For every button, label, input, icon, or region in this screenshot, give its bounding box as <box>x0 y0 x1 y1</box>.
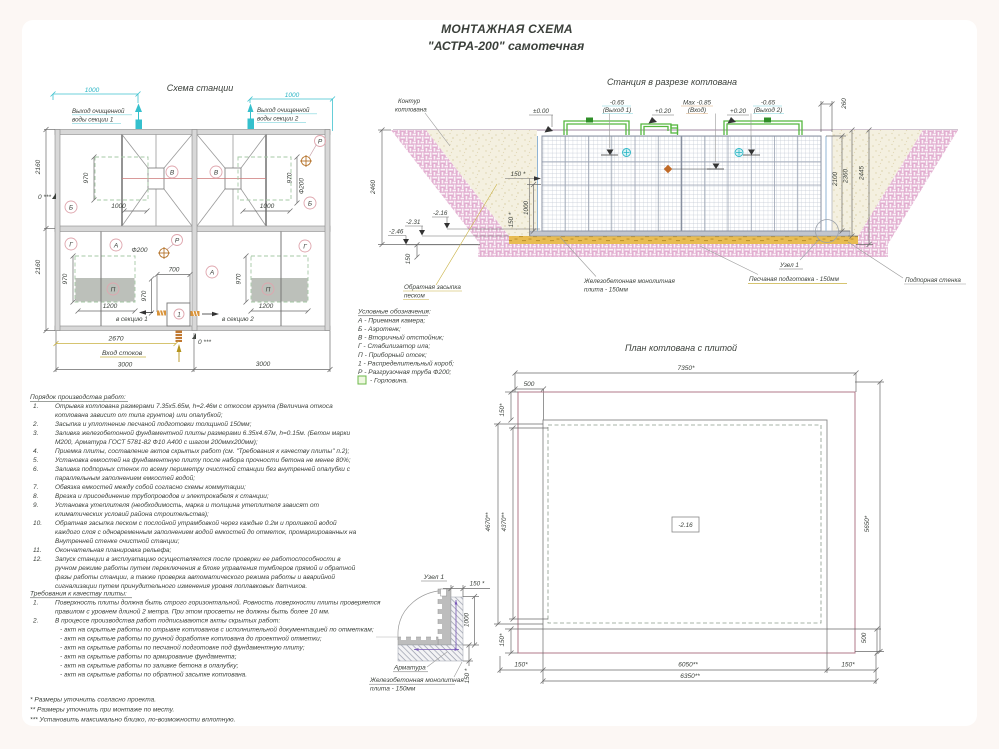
svg-text:7.: 7. <box>33 484 39 491</box>
svg-text:Обратная засыпка: Обратная засыпка <box>404 283 461 291</box>
svg-text:150*: 150* <box>514 662 528 669</box>
svg-text:Условные обозначения:: Условные обозначения: <box>357 308 431 316</box>
svg-text:970: 970 <box>236 273 243 284</box>
svg-text:** Размеры уточнить при монтаж: ** Размеры уточнить при монтаже по месту… <box>30 707 174 714</box>
svg-text:Р: Р <box>318 139 323 146</box>
svg-text:Поверхность плиты должна быть: Поверхность плиты должна быть строго гор… <box>55 599 381 607</box>
svg-text:котлована: котлована <box>395 107 427 114</box>
svg-text:1000: 1000 <box>464 613 471 628</box>
svg-text:970: 970 <box>62 273 69 284</box>
svg-text:В: В <box>170 170 175 177</box>
svg-text:150*: 150* <box>499 403 506 417</box>
svg-text:(Выход 2): (Выход 2) <box>754 106 782 114</box>
svg-text:Б: Б <box>69 205 73 212</box>
svg-text:Порядок производства работ:: Порядок производства работ: <box>30 393 126 401</box>
svg-text:Требования к качеству плиты:: Требования к качеству плиты: <box>30 590 127 598</box>
svg-text:1200: 1200 <box>259 303 274 310</box>
svg-text:Вход стоков: Вход стоков <box>102 349 143 357</box>
svg-text:1000: 1000 <box>523 201 530 216</box>
svg-text:Г: Г <box>303 244 307 251</box>
svg-text:П: П <box>111 287 116 294</box>
svg-text:*** Установить максимально бли: *** Установить максимально близко, по-во… <box>30 716 236 724</box>
svg-text:150*: 150* <box>499 633 506 647</box>
svg-text:Обратная засыпка песком с посл: Обратная засыпка песком с послойной утра… <box>55 519 337 527</box>
svg-text:сигнализации путем принудитель: сигнализации путем принудительного измен… <box>55 582 307 590</box>
svg-text:Схема станции: Схема станции <box>167 83 234 93</box>
svg-text:- акт на скрытые работы по зал: - акт на скрытые работы по заливке бетон… <box>60 662 238 670</box>
svg-text:150 *: 150 * <box>508 212 515 227</box>
svg-text:500: 500 <box>524 381 535 388</box>
svg-text:П: П <box>266 287 271 294</box>
svg-text:5650*: 5650* <box>864 515 871 532</box>
svg-text:плита - 150мм: плита - 150мм <box>370 686 416 693</box>
svg-text:Песчаная подготовка - 150мм: Песчаная подготовка - 150мм <box>749 275 840 283</box>
svg-text:План котлована с плитой: План котлована с плитой <box>625 343 737 353</box>
svg-text:песком: песком <box>404 293 426 300</box>
svg-text:2.: 2. <box>32 618 39 625</box>
svg-text:2445: 2445 <box>859 166 866 182</box>
svg-text:ручном режиме работы путем пер: ручном режиме работы путем переключения … <box>54 564 356 572</box>
svg-text:Обвязка емкостей между собой с: Обвязка емкостей между собой согласно сх… <box>55 483 246 491</box>
svg-text:6.: 6. <box>33 466 39 473</box>
svg-text:Контур: Контур <box>398 98 421 105</box>
svg-text:Приемка плиты, составление акт: Приемка плиты, составление актов скрытых… <box>55 447 349 455</box>
svg-text:(Вход): (Вход) <box>688 106 706 114</box>
svg-text:в секцию 1: в секцию 1 <box>116 316 148 323</box>
svg-text:2460: 2460 <box>370 180 377 196</box>
svg-text:0 ***: 0 *** <box>198 339 211 346</box>
svg-text:700: 700 <box>169 267 180 274</box>
svg-text:Арматура: Арматура <box>393 665 426 672</box>
svg-text:150*: 150* <box>841 662 855 669</box>
svg-text:970: 970 <box>141 290 148 301</box>
svg-text:150 *: 150 * <box>470 581 485 588</box>
svg-text:Р: Р <box>175 238 180 245</box>
svg-text:Узел 1: Узел 1 <box>779 262 799 269</box>
svg-text:1000: 1000 <box>285 92 300 99</box>
svg-text:4670**: 4670** <box>485 512 492 531</box>
svg-text:-2.31: -2.31 <box>406 219 420 226</box>
svg-text:"АСТРА-200" самотечная: "АСТРА-200" самотечная <box>428 39 585 53</box>
svg-text:Врезка и присоединение трубопр: Врезка и присоединение трубопроводов и э… <box>55 492 269 500</box>
svg-text:3000: 3000 <box>118 362 133 369</box>
svg-text:* Размеры уточнить согласно пр: * Размеры уточнить согласно проекта. <box>30 697 156 704</box>
svg-text:5.: 5. <box>33 457 39 464</box>
svg-text:А: А <box>209 270 214 277</box>
svg-text:4.: 4. <box>33 448 39 455</box>
svg-text:каждого слоя с одновременным з: каждого слоя с одновременным заполнением… <box>55 528 357 536</box>
svg-text:1.: 1. <box>33 600 39 607</box>
svg-text:1: 1 <box>177 312 181 319</box>
svg-text:- акт на скрытые работы по отр: - акт на скрытые работы по отрывке котло… <box>60 626 374 634</box>
svg-text:А - Приемная камера;: А - Приемная камера; <box>357 317 425 324</box>
svg-text:+0.20: +0.20 <box>655 108 671 115</box>
svg-text:970: 970 <box>287 172 294 183</box>
svg-text:Мах -0.85: Мах -0.85 <box>683 100 712 107</box>
svg-text:климатических условий района с: климатических условий района строительст… <box>55 510 209 518</box>
svg-text:Б: Б <box>308 201 312 208</box>
svg-text:8.: 8. <box>33 493 39 500</box>
svg-text:1000: 1000 <box>85 87 100 94</box>
svg-text:(Выход 1): (Выход 1) <box>603 106 631 114</box>
svg-text:500: 500 <box>861 632 868 643</box>
svg-text:Ф200: Ф200 <box>131 247 147 254</box>
svg-text:Установка утеплителя (необходи: Установка утеплителя (необходимость, мар… <box>54 501 320 509</box>
svg-text:МОНТАЖНАЯ СХЕМА: МОНТАЖНАЯ СХЕМА <box>441 22 573 36</box>
svg-text:12.: 12. <box>33 556 42 563</box>
svg-text:9.: 9. <box>33 502 39 509</box>
svg-text:2.: 2. <box>32 421 39 428</box>
svg-text:-2.16: -2.16 <box>433 210 448 217</box>
svg-text:+0.20: +0.20 <box>730 108 746 115</box>
svg-text:Внутренней стенке очистной ста: Внутренней стенке очистной станции; <box>55 537 180 545</box>
svg-text:-0.65: -0.65 <box>610 100 625 107</box>
svg-text:Б - Аэротенк;: Б - Аэротенк; <box>358 326 401 333</box>
svg-text:Подпорная стенка: Подпорная стенка <box>905 276 961 284</box>
svg-text:В: В <box>214 170 219 177</box>
svg-text:-2.16: -2.16 <box>678 522 693 529</box>
svg-text:Железобетонная монолитная: Железобетонная монолитная <box>369 676 464 684</box>
svg-text:Г: Г <box>69 242 73 249</box>
svg-text:0 ***: 0 *** <box>38 194 51 201</box>
svg-text:Установка емкостей на фундамен: Установка емкостей на фундаментную плиту… <box>54 456 351 464</box>
svg-text:- акт на скрытые работы по руч: - акт на скрытые работы по ручной дорабо… <box>60 635 322 643</box>
svg-text:3000: 3000 <box>256 361 271 368</box>
svg-text:Станция в разрезе котлована: Станция в разрезе котлована <box>607 77 737 87</box>
svg-text:Заливка подпорных стенок по вс: Заливка подпорных стенок по всему периме… <box>55 465 351 473</box>
svg-text:11.: 11. <box>33 547 42 554</box>
svg-text:-0.65: -0.65 <box>761 100 776 107</box>
svg-text:2160: 2160 <box>35 159 42 175</box>
svg-text:- акт на скрытые работы по арм: - акт на скрытые работы по армирование ф… <box>60 653 237 661</box>
svg-text:2100: 2100 <box>832 172 839 188</box>
svg-text:Заливка железобетонной фундаме: Заливка железобетонной фундаментной плит… <box>55 429 351 437</box>
svg-text:воды секции 1: воды секции 1 <box>72 117 113 124</box>
svg-text:2160: 2160 <box>35 259 42 275</box>
svg-text:Ф200: Ф200 <box>299 178 306 194</box>
svg-text:2670: 2670 <box>107 336 123 343</box>
svg-text:А: А <box>113 243 118 250</box>
svg-text:7350*: 7350* <box>678 365 695 372</box>
svg-text:Выход очищенной: Выход очищенной <box>257 107 310 114</box>
svg-text:±0.00: ±0.00 <box>533 108 549 115</box>
svg-text:Засыпка и уплотнение песчаной: Засыпка и уплотнение песчаной подготовки… <box>55 420 252 428</box>
svg-text:-2.46: -2.46 <box>389 229 404 236</box>
svg-text:150 *: 150 * <box>511 171 526 178</box>
svg-text:6350**: 6350** <box>680 673 700 680</box>
svg-text:2360: 2360 <box>843 169 850 185</box>
svg-text:В - Вторичный отстойник;: В - Вторичный отстойник; <box>358 334 444 342</box>
svg-text:3.: 3. <box>33 430 39 437</box>
svg-text:Запуск станции в эксплуатацию: Запуск станции в эксплуатацию осуществля… <box>55 555 341 563</box>
svg-text:фазы работы станции, а также п: фазы работы станции, а также проверка ав… <box>55 573 335 581</box>
svg-text:Отрывка котлована размерами 7.: Отрывка котлована размерами 7.35х5.65м, … <box>55 403 333 410</box>
svg-text:правилом с уровнем длиной 2 ме: правилом с уровнем длиной 2 метра. При э… <box>55 608 330 616</box>
svg-text:1000: 1000 <box>111 203 126 210</box>
svg-text:150: 150 <box>405 253 412 264</box>
svg-text:М200, Арматура ГОСТ 5781-82 Ф1: М200, Арматура ГОСТ 5781-82 Ф10 А400 с ш… <box>55 439 258 446</box>
svg-text:6050**: 6050** <box>678 662 698 669</box>
svg-text:1000: 1000 <box>260 203 275 210</box>
svg-text:150 *: 150 * <box>464 668 471 683</box>
svg-text:в секцию 2: в секцию 2 <box>222 316 254 323</box>
svg-text:Узел 1: Узел 1 <box>423 574 445 581</box>
svg-text:Г - Стабилизатор ила;: Г - Стабилизатор ила; <box>358 342 430 350</box>
svg-text:1200: 1200 <box>103 303 118 310</box>
svg-text:воды секции 2: воды секции 2 <box>257 116 299 123</box>
svg-text:В процессе производства работ: В процессе производства работ подписываю… <box>55 617 280 625</box>
svg-text:Р - Разгрузочная труба Ф200;: Р - Разгрузочная труба Ф200; <box>358 368 451 376</box>
svg-text:970: 970 <box>83 172 90 183</box>
svg-text:1.: 1. <box>33 403 39 410</box>
svg-text:- Горловина.: - Горловина. <box>370 378 408 385</box>
svg-text:Окончательная планировка релье: Окончательная планировка рельефа; <box>55 547 172 554</box>
svg-text:- акт на скрытые работы по пес: - акт на скрытые работы по песчаной подг… <box>60 644 305 652</box>
svg-text:плита - 150мм: плита - 150мм <box>584 287 629 294</box>
svg-text:10.: 10. <box>33 520 42 527</box>
svg-text:4370**: 4370** <box>501 512 508 531</box>
svg-text:Выход очищенной: Выход очищенной <box>72 108 125 115</box>
svg-text:1 - Распределительный короб;: 1 - Распределительный короб; <box>358 359 454 367</box>
svg-text:котлована зависит от типа грун: котлована зависит от типа грунтов) или о… <box>55 411 223 419</box>
svg-text:260: 260 <box>841 98 848 110</box>
svg-text:П - Приборный отсек;: П - Приборный отсек; <box>358 351 427 359</box>
svg-text:параллельным заполнением емкос: параллельным заполнением емкостей водой; <box>55 474 195 482</box>
svg-text:- акт на скрытые работы по обр: - акт на скрытые работы по обратной засы… <box>60 671 247 679</box>
svg-text:Железобетонная монолитная: Железобетонная монолитная <box>583 277 676 285</box>
